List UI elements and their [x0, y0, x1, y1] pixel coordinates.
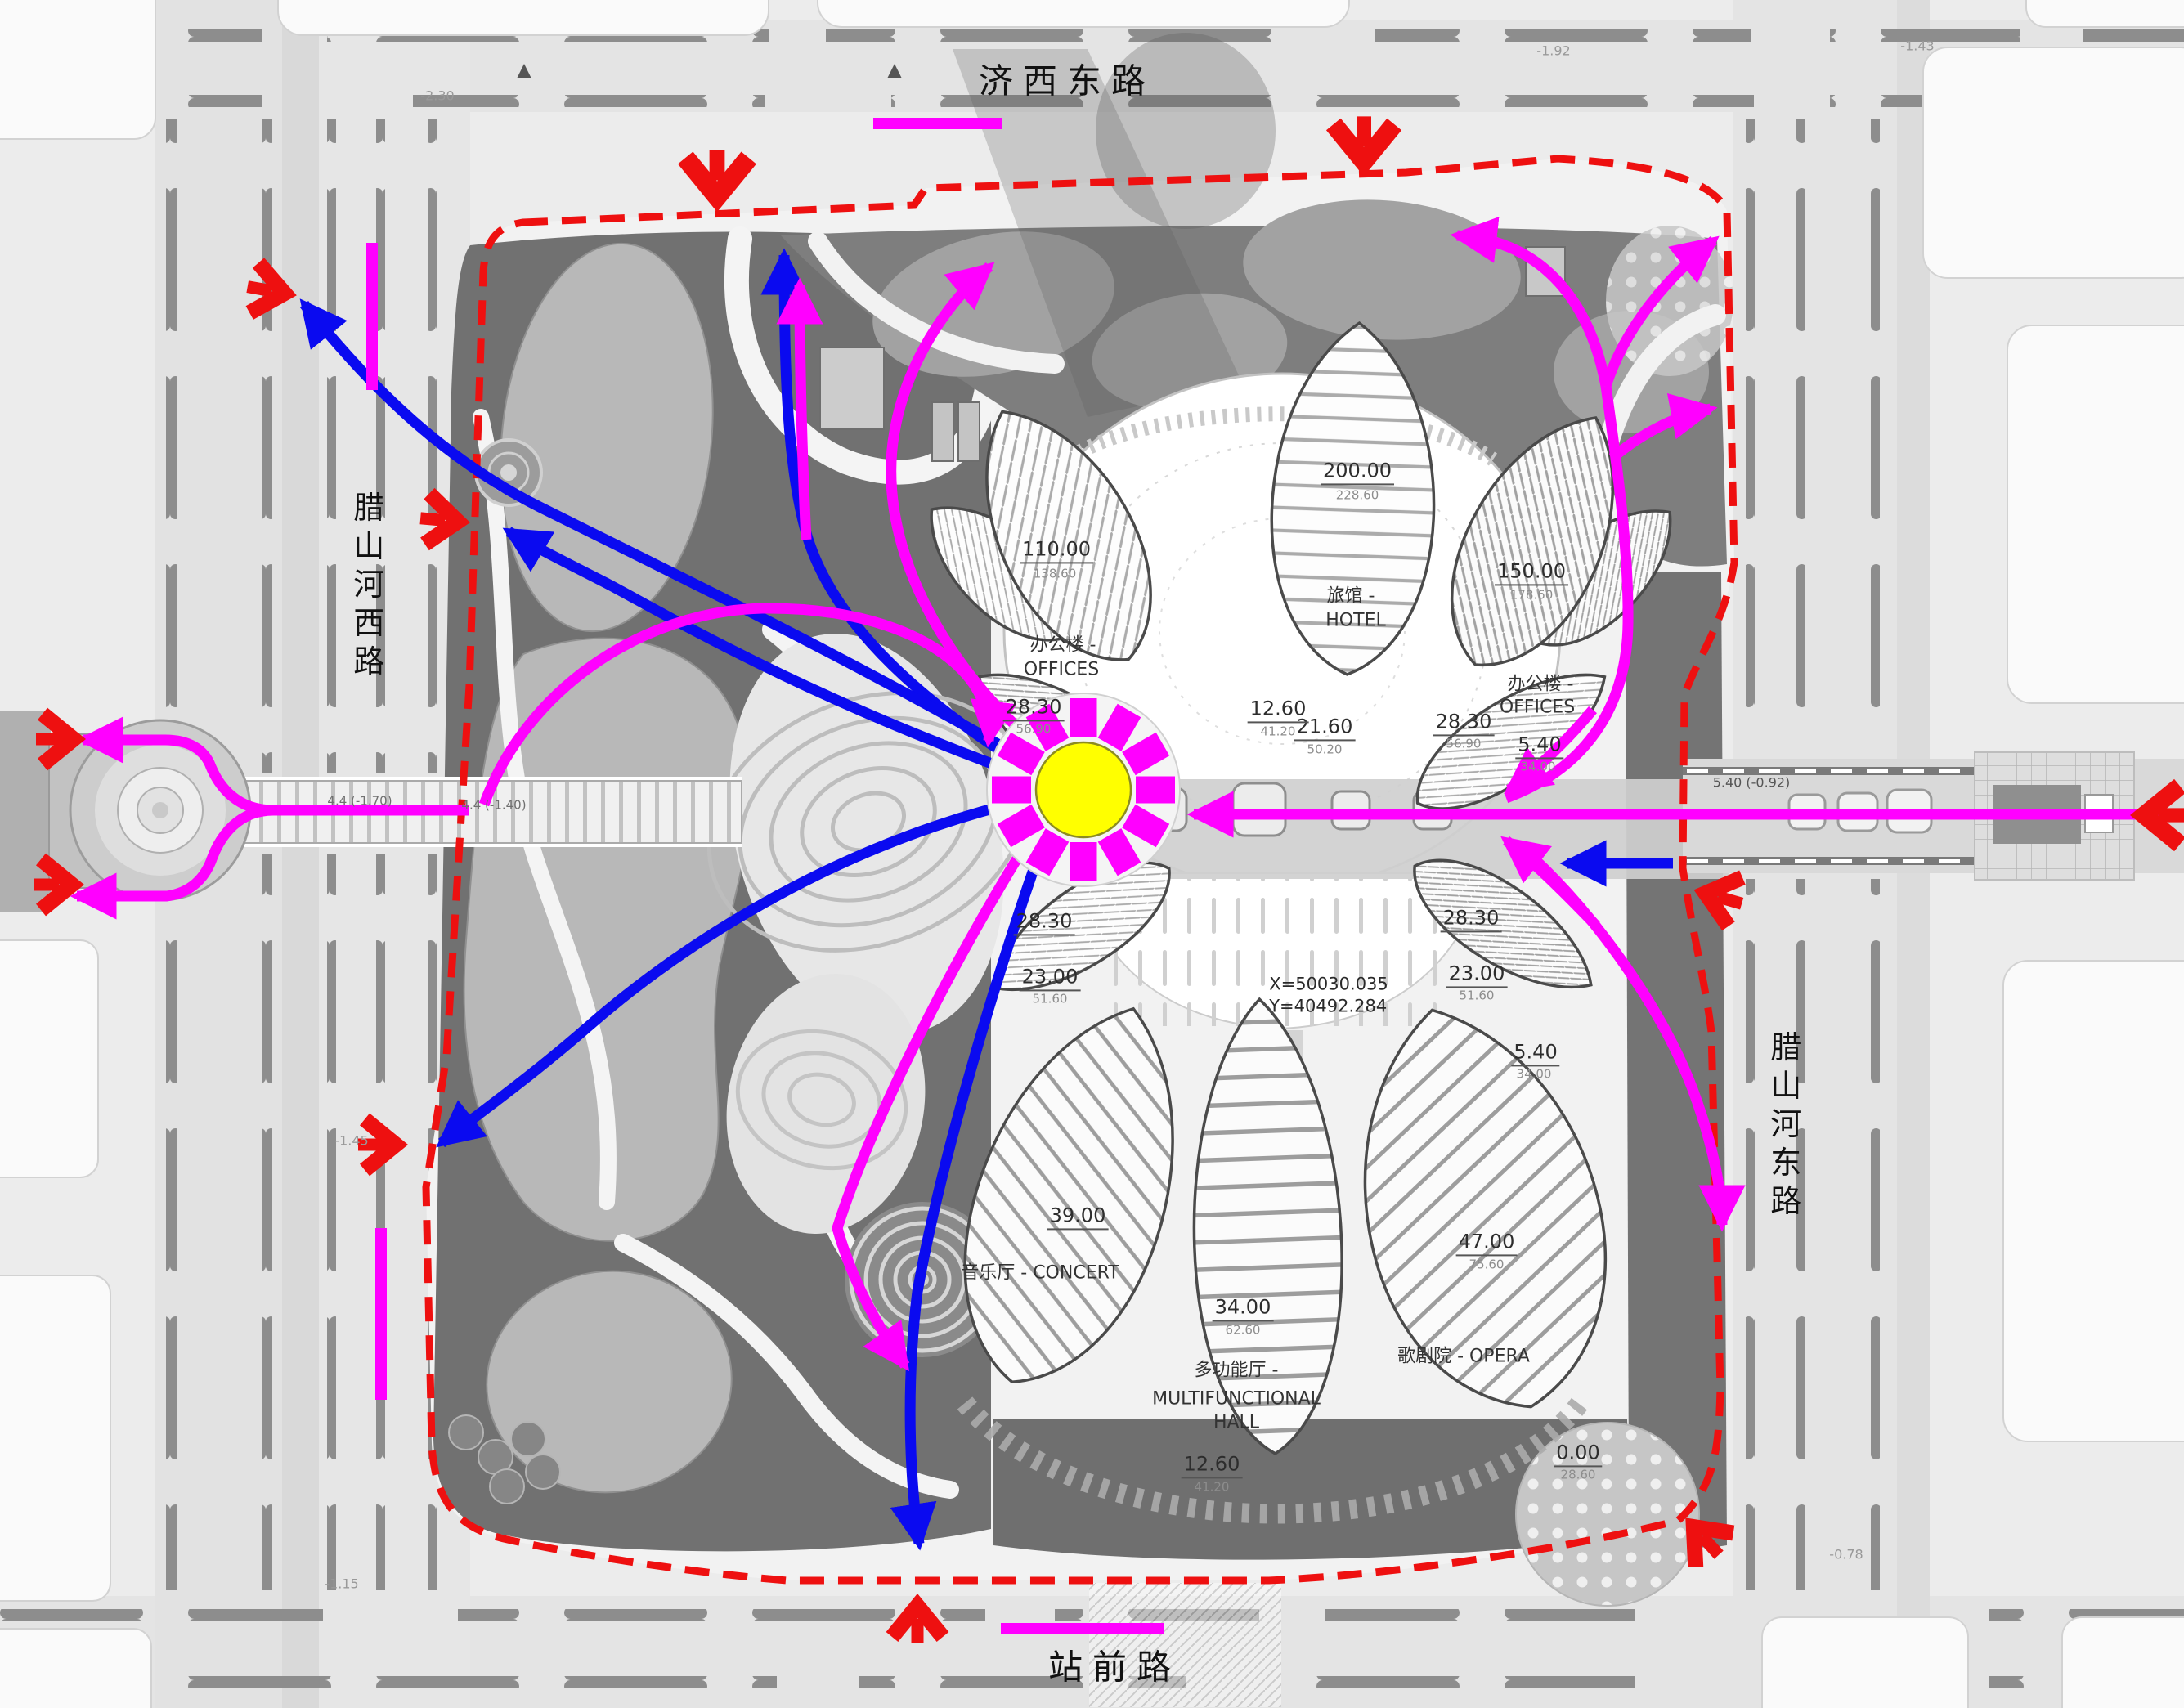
site-plan-canvas: 济西东路 站前路 腊山河西路 腊山河东路 110.00 138.60 办公楼 -…	[0, 0, 2184, 1708]
shadow-blob	[1096, 33, 1276, 229]
sun-core	[1036, 742, 1131, 837]
entry-arrow-top-left	[685, 150, 749, 197]
sun-node	[987, 693, 1180, 886]
site-plan-drawing	[0, 0, 2184, 1708]
crosswalk-hatch	[1089, 1583, 1281, 1707]
entry-arrow-top-right	[1334, 116, 1394, 161]
roundabout	[70, 720, 250, 900]
